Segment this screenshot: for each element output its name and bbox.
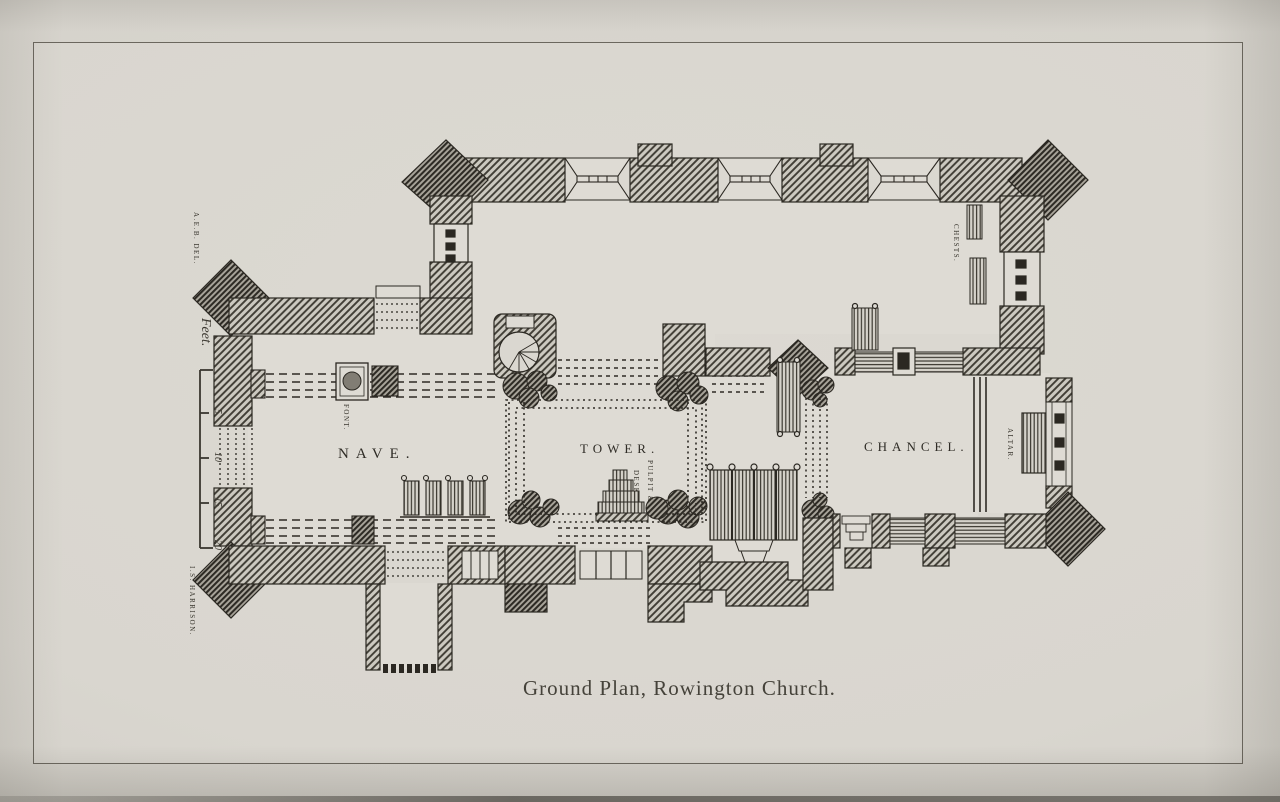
tower-stair-turret <box>494 314 556 378</box>
desk-label: DESK <box>632 470 640 494</box>
plate-caption: Ground Plan, Rowington Church. <box>523 676 836 700</box>
font <box>336 363 368 400</box>
scale-title: Feet. <box>198 317 213 346</box>
tower-ne-wall <box>663 324 705 376</box>
east-wall <box>1046 378 1072 508</box>
chests-label: CHESTS. <box>952 224 960 262</box>
tower-south-wall <box>505 546 712 622</box>
nave-west-door <box>220 428 252 486</box>
organ-screen <box>700 464 808 606</box>
ground-plan-figure: CHESTS. <box>0 0 1280 802</box>
scale-tick-10: 10 <box>212 452 223 462</box>
nave-north-door <box>376 286 420 328</box>
altar-label: ALTAR. <box>1006 428 1014 461</box>
nave-south-window <box>462 551 498 579</box>
chancel-south-wall <box>833 514 1046 568</box>
photo-bottom-edge <box>0 796 1280 802</box>
chancel-label: CHANCEL. <box>864 439 969 454</box>
nave-south-door <box>387 552 446 576</box>
aisle-windows <box>565 158 940 200</box>
scale-bar <box>200 370 213 548</box>
tower-label: TOWER. <box>580 441 659 456</box>
scale-tick-5: 5 <box>212 409 223 414</box>
delineator-credit: A.E.B. DEL. <box>192 212 200 265</box>
pulpit-desk-label: PULPIT & <box>646 460 654 503</box>
scale-tick-20: 20 <box>212 540 223 550</box>
nave-label: NAVE. <box>338 446 416 462</box>
scale-tick-15: 15 <box>212 497 223 507</box>
font-label: FONT. <box>342 404 350 431</box>
engraver-credit: I.S. HARRISON. <box>188 566 196 636</box>
